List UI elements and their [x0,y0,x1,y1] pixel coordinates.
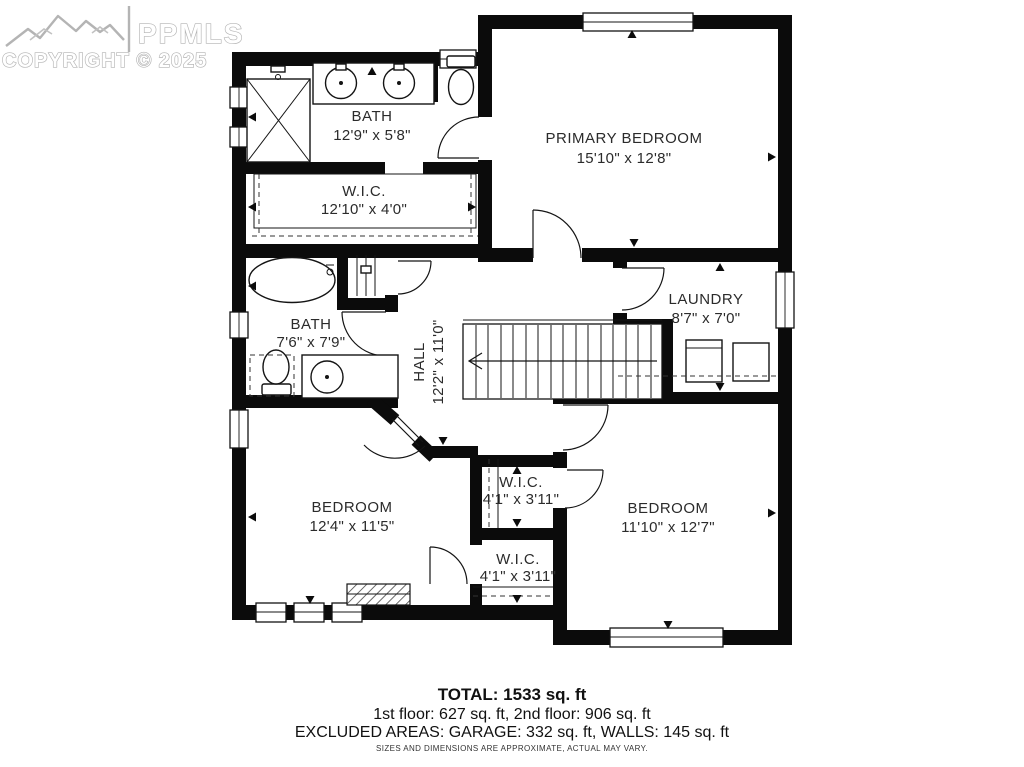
double-vanity [313,63,434,104]
window [332,603,362,622]
room-name: BEDROOM [627,500,708,517]
window [230,127,248,147]
room-dims: 8'7" x 7'0" [672,310,741,327]
window [294,603,324,622]
room-dims: 4'1" x 3'11" [480,568,556,585]
staircase [463,320,662,399]
label-wic-main: W.I.C. 12'10" x 4'0" [321,183,407,218]
shower [247,66,310,162]
wic-lower-rod [473,587,553,596]
window [230,87,248,108]
floor-plan-page: PPMLS COPYRIGHT © 2025 [0,0,1024,767]
room-dims: 7'6" x 7'9" [277,334,346,351]
label-bedroom-right: BEDROOM 11'10" x 12'7" [621,500,715,536]
label-wic-upper: W.I.C. 4'1" x 3'11" [483,474,559,508]
label-wic-lower: W.I.C. 4'1" x 3'11" [480,551,556,585]
mountain-icon-inner [30,27,108,40]
logo-copyright: COPYRIGHT © 2025 [2,50,207,72]
label-hall: HALL 12'2" x 11'0" [411,319,447,404]
door-wic-lower [430,547,467,584]
window [583,13,693,31]
label-bath-hall: BATH 7'6" x 7'9" [277,316,346,351]
room-dims: 12'4" x 11'5" [309,518,394,535]
excluded-areas: EXCLUDED AREAS: GARAGE: 332 sq. ft, WALL… [295,724,730,741]
door-bath-top [438,117,479,158]
door-linen-closet [398,261,431,294]
room-name: W.I.C. [499,474,543,491]
hatched-chase [347,584,410,605]
window [230,410,248,448]
vanity [302,355,398,398]
window [610,628,723,647]
room-name: BEDROOM [311,499,392,516]
room-dims: 15'10" x 12'8" [577,150,672,167]
window [230,312,248,338]
room-name: LAUNDRY [669,291,744,308]
total-area: TOTAL: 1533 sq. ft [438,685,587,704]
room-name: HALL [411,342,428,382]
disclaimer-note: SIZES AND DIMENSIONS ARE APPROXIMATE, AC… [376,744,648,753]
label-bedroom-left: BEDROOM 12'4" x 11'5" [309,499,394,535]
door-bedroom-left-diagonal [364,415,425,458]
door-wic-upper [565,470,603,508]
room-dims: 11'10" x 12'7" [621,519,715,536]
label-bath-top: BATH 12'9" x 5'8" [333,108,411,144]
bathtub [249,258,335,303]
linen-closet [357,255,375,296]
area-summary: TOTAL: 1533 sq. ft 1st floor: 627 sq. ft… [295,685,730,753]
window [256,603,286,622]
floor-plan-canvas: PPMLS COPYRIGHT © 2025 [0,0,1024,767]
door-bath-hall [342,312,386,356]
room-name: BATH [352,108,393,125]
room-name: BATH [291,316,332,333]
room-dims: 12'9" x 5'8" [333,127,411,144]
door-primary-bedroom [533,210,581,258]
room-dims: 12'10" x 4'0" [321,201,407,218]
dryer [733,343,769,381]
room-dims: 4'1" x 3'11" [483,491,559,508]
floor-areas: 1st floor: 627 sq. ft, 2nd floor: 906 sq… [373,706,651,723]
door-laundry [622,268,664,310]
room-name: PRIMARY BEDROOM [546,130,703,147]
toilet [250,350,294,396]
room-dims: 12'2" x 11'0" [430,319,447,404]
logo-brand: PPMLS [138,18,244,49]
label-primary-bedroom: PRIMARY BEDROOM 15'10" x 12'8" [546,130,703,167]
ppmls-logo: PPMLS COPYRIGHT © 2025 [2,6,244,72]
door-bedroom-right-entry [563,405,608,450]
room-name: W.I.C. [496,551,540,568]
label-laundry: LAUNDRY 8'7" x 7'0" [669,291,744,327]
room-name: W.I.C. [342,183,386,200]
window [776,272,794,328]
toilet [447,56,475,105]
